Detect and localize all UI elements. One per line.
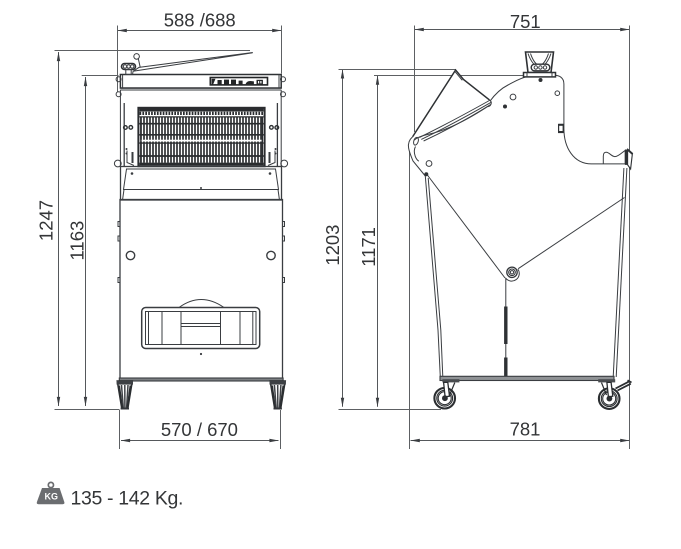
svg-text:751: 751 bbox=[510, 11, 541, 32]
svg-text:781: 781 bbox=[510, 419, 541, 440]
svg-text:1163: 1163 bbox=[67, 221, 88, 261]
svg-text:588 /688: 588 /688 bbox=[164, 10, 236, 31]
svg-text:1247: 1247 bbox=[35, 200, 56, 241]
svg-text:1203: 1203 bbox=[322, 225, 343, 266]
svg-text:570 / 670: 570 / 670 bbox=[161, 419, 238, 440]
svg-text:135 - 142 Kg.: 135 - 142 Kg. bbox=[71, 487, 184, 509]
svg-text:1171: 1171 bbox=[358, 227, 379, 267]
svg-text:KG: KG bbox=[45, 492, 59, 502]
